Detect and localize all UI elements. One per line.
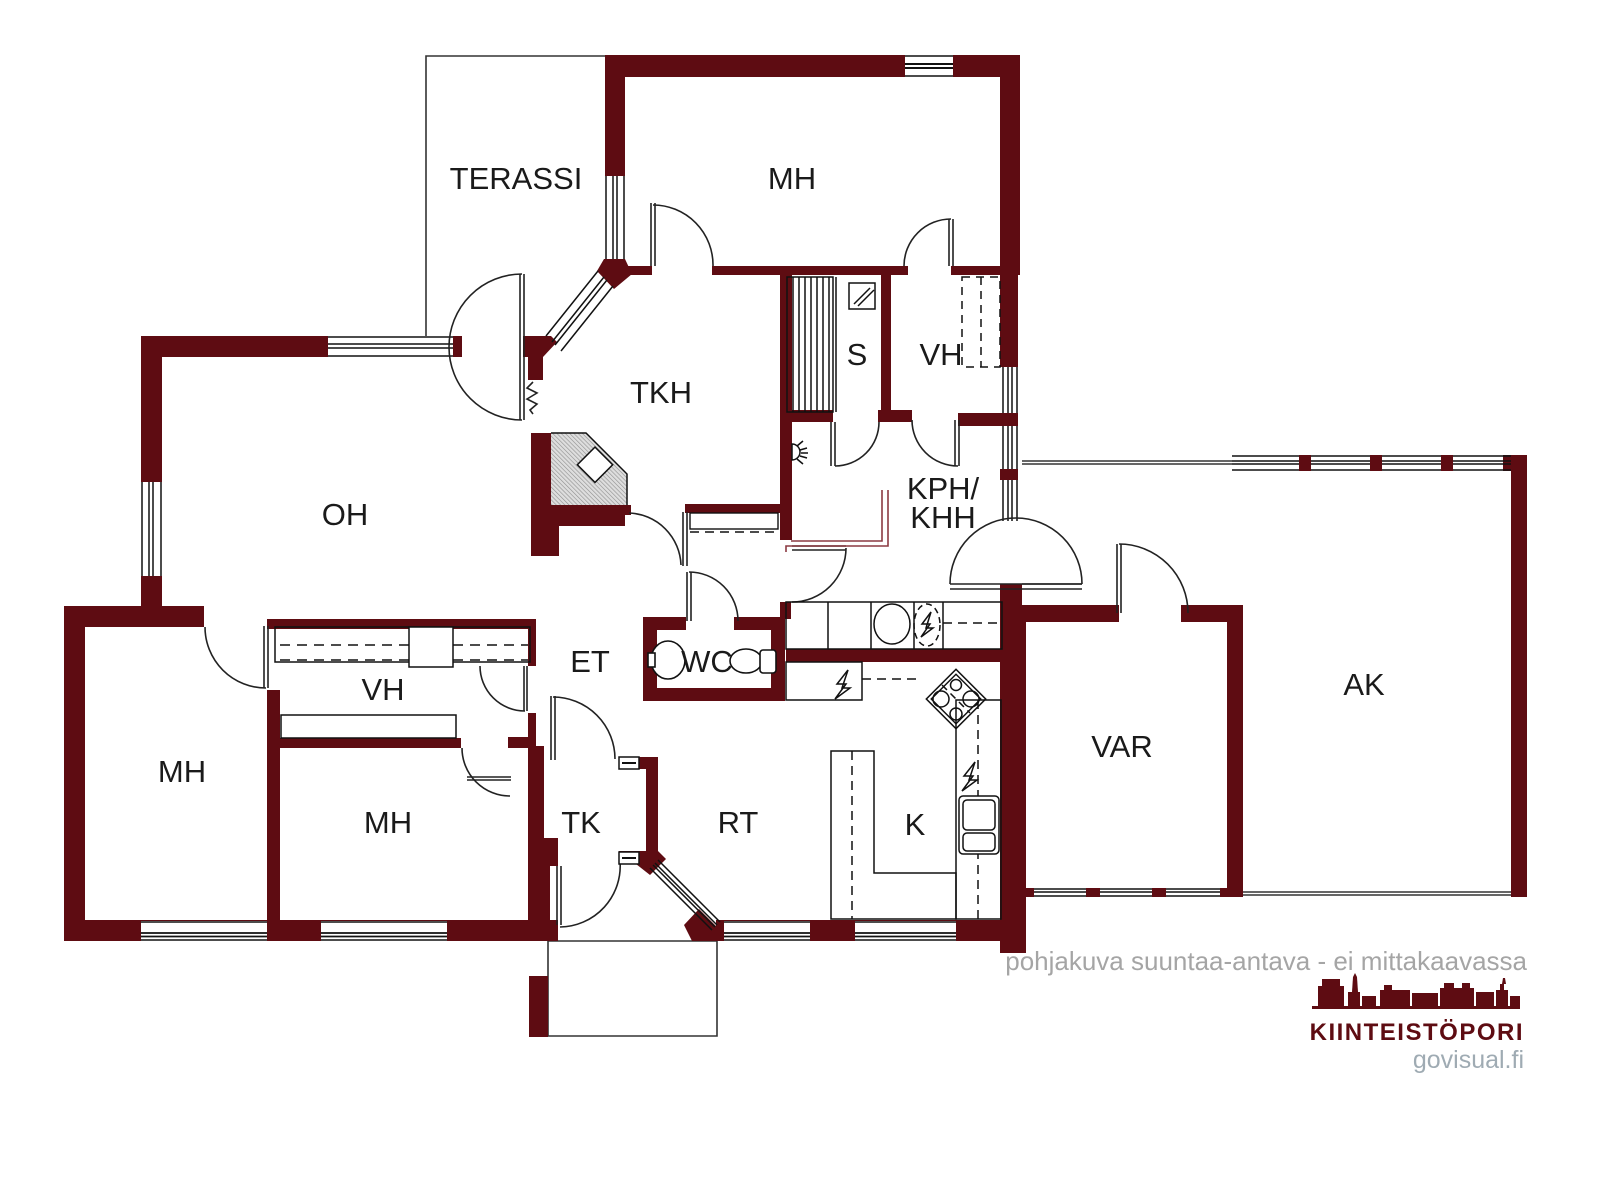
svg-text:K: K bbox=[905, 807, 926, 842]
svg-text:WC: WC bbox=[681, 644, 733, 679]
svg-text:ET: ET bbox=[570, 644, 610, 679]
svg-text:VAR: VAR bbox=[1091, 729, 1152, 764]
svg-text:TERASSI: TERASSI bbox=[450, 161, 583, 196]
svg-text:VH: VH bbox=[919, 337, 962, 372]
svg-text:KHH: KHH bbox=[910, 500, 975, 535]
svg-text:AK: AK bbox=[1343, 667, 1385, 702]
svg-text:KIINTEISTÖPORI: KIINTEISTÖPORI bbox=[1310, 1019, 1524, 1046]
svg-text:MH: MH bbox=[768, 161, 816, 196]
svg-text:TKH: TKH bbox=[630, 375, 692, 410]
svg-text:OH: OH bbox=[322, 497, 369, 532]
svg-text:MH: MH bbox=[364, 805, 412, 840]
svg-text:pohjakuva suuntaa-antava - ei: pohjakuva suuntaa-antava - ei mittakaava… bbox=[1005, 946, 1527, 976]
svg-text:VH: VH bbox=[361, 672, 404, 707]
svg-text:govisual.fi: govisual.fi bbox=[1413, 1046, 1524, 1074]
svg-text:S: S bbox=[847, 337, 868, 372]
svg-text:TK: TK bbox=[561, 805, 601, 840]
svg-text:RT: RT bbox=[718, 805, 759, 840]
svg-text:MH: MH bbox=[158, 754, 206, 789]
